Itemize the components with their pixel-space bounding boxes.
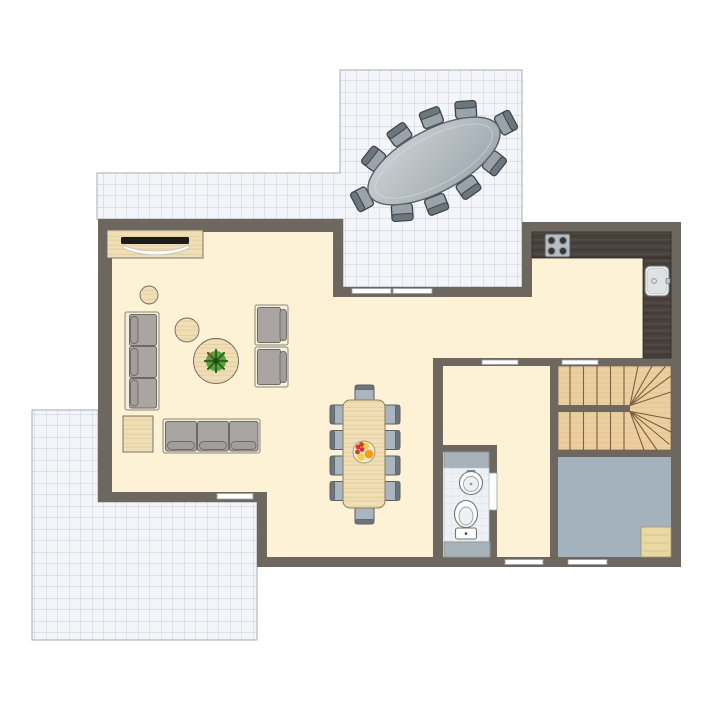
wall-hall-stairs	[550, 366, 558, 557]
plant-berry	[208, 353, 211, 356]
burner	[559, 237, 567, 245]
coffee-table-with-plant	[194, 339, 239, 384]
bathroom-cabinet-bottom	[444, 542, 490, 557]
floor-plan-page	[0, 0, 710, 710]
wall-bathroom-top	[443, 445, 497, 452]
window-utility-south	[568, 560, 607, 565]
sliding-door-panel-right	[393, 289, 432, 294]
burner	[548, 247, 556, 255]
wall-step-vertical	[257, 492, 267, 567]
kitchen-sink	[645, 266, 670, 296]
bathroom	[444, 452, 490, 557]
tv	[121, 237, 189, 244]
wall-bathroom-right-upper	[489, 452, 497, 473]
door-bathroom	[489, 473, 497, 510]
window-living-southwest	[217, 494, 253, 500]
sofa-3-seat-vertical	[125, 312, 159, 410]
utility-room	[641, 527, 671, 557]
wall-interior-vertical	[433, 358, 443, 567]
sofa-3-seat-horizontal	[163, 419, 260, 453]
wall-interior-horizontal	[433, 358, 681, 366]
square-pouf	[123, 416, 153, 452]
door-staircase	[562, 360, 598, 365]
cooktop	[545, 234, 570, 257]
outdoor-chair	[455, 100, 477, 118]
burner	[548, 237, 556, 245]
sink-faucet	[666, 279, 670, 284]
toilet	[455, 501, 478, 540]
tv-sideboard	[107, 230, 203, 258]
wall-utility-top	[558, 450, 671, 457]
wall-bottom	[257, 557, 681, 567]
floor-mat	[641, 527, 671, 557]
wall-left	[98, 219, 112, 502]
round-pouf-large	[175, 318, 199, 342]
washbasin	[460, 471, 483, 495]
wall-right	[671, 222, 681, 567]
outdoor-chair	[391, 203, 413, 221]
armchair-1	[255, 305, 288, 345]
armchair-2	[255, 347, 288, 387]
wall-kitchen-terrace-divider	[522, 222, 532, 297]
wall-kitchen-top	[522, 222, 681, 232]
window-hallway-south	[505, 560, 543, 565]
wall-stair-stub	[558, 405, 630, 412]
floor-plan-canvas	[0, 0, 710, 710]
sliding-door-panel-left	[352, 289, 391, 294]
round-pouf-small	[140, 286, 158, 304]
burner	[559, 247, 567, 255]
bathroom-cabinet-top	[444, 452, 489, 468]
door-hallway	[482, 360, 518, 365]
dining-chair	[355, 506, 374, 524]
fruit-bowl	[353, 441, 375, 463]
